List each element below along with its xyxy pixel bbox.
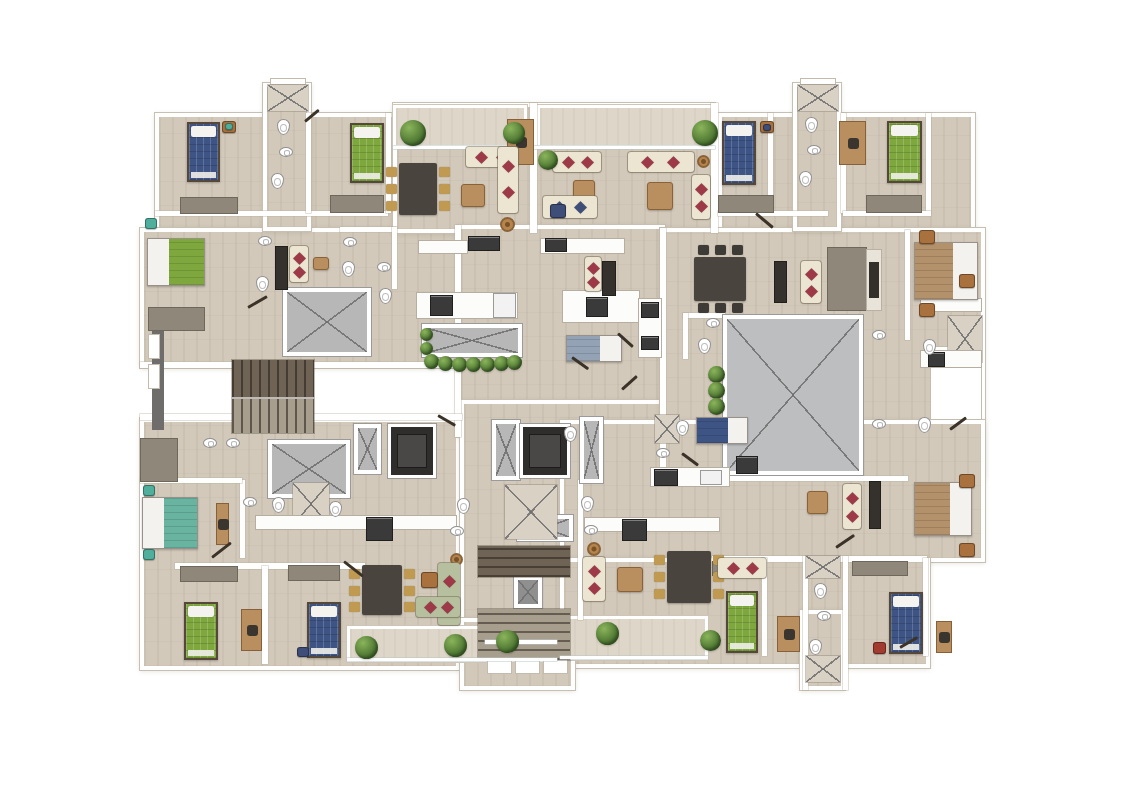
wall xyxy=(340,227,396,232)
wardrobe xyxy=(180,566,238,582)
sofa-cushion xyxy=(641,156,654,169)
tv-unit xyxy=(602,261,616,296)
coffee-table xyxy=(461,184,485,207)
sink-fixture xyxy=(807,145,821,155)
sofa-cushion xyxy=(587,276,600,289)
sofa-cushion xyxy=(588,565,601,578)
bed-blanket xyxy=(915,243,953,299)
double-bed xyxy=(147,238,205,286)
desk xyxy=(216,503,229,545)
appliance xyxy=(366,517,393,541)
wall xyxy=(240,480,245,558)
closet-x xyxy=(806,556,840,578)
plant xyxy=(708,398,725,415)
window-sill xyxy=(148,334,160,359)
sofa-cushion xyxy=(581,156,594,169)
sofa-cushion xyxy=(476,151,489,164)
sofa xyxy=(801,261,821,303)
tv-stand xyxy=(866,249,882,311)
desk xyxy=(839,121,866,165)
single-bed xyxy=(887,121,922,183)
appliance xyxy=(622,519,647,541)
bed-pillow xyxy=(726,125,752,136)
sofa xyxy=(843,484,861,529)
plant xyxy=(420,328,433,341)
wardrobe xyxy=(718,195,774,213)
sofa-cushion xyxy=(805,285,818,298)
sofa-cushion xyxy=(846,510,859,523)
wall xyxy=(926,113,931,213)
sink-fixture xyxy=(243,497,257,507)
plant-pot xyxy=(143,485,155,496)
balcony xyxy=(560,616,708,660)
plant-pot xyxy=(143,549,155,560)
plant xyxy=(438,356,453,371)
sofa xyxy=(416,597,460,617)
sink-fixture xyxy=(584,525,598,535)
bed-pillow xyxy=(311,606,337,617)
sofa-cushion xyxy=(293,266,306,279)
sofa xyxy=(583,557,605,601)
wardrobe xyxy=(140,438,178,482)
shaft-x xyxy=(354,424,381,474)
bed-foot xyxy=(188,650,214,656)
tv-unit xyxy=(869,481,881,529)
staircase xyxy=(478,546,570,577)
sink-fixture xyxy=(817,611,831,621)
kitchen-counter xyxy=(418,240,468,254)
tv-unit xyxy=(275,246,288,290)
side-table xyxy=(587,542,601,556)
desk xyxy=(241,609,262,651)
dining-chair xyxy=(654,589,665,599)
staircase xyxy=(232,399,314,433)
refrigerator xyxy=(700,470,722,485)
plant xyxy=(700,630,721,651)
window-sill xyxy=(800,78,836,85)
plant-pot xyxy=(959,274,975,288)
wardrobe xyxy=(288,565,340,581)
sink-fixture xyxy=(656,448,670,458)
plant-pot xyxy=(145,218,157,229)
staircase xyxy=(478,609,570,660)
desk-chair xyxy=(939,632,950,643)
sink-fixture xyxy=(226,438,240,448)
bed-pillow xyxy=(893,596,919,607)
plant xyxy=(480,357,495,372)
closet-x xyxy=(505,485,557,539)
window-sill xyxy=(270,78,306,85)
dining-chair xyxy=(732,245,743,255)
plant-pot xyxy=(959,474,975,488)
coffee-table xyxy=(807,491,828,514)
sofa-cushion xyxy=(805,268,818,281)
dining-chair xyxy=(654,572,665,582)
refrigerator xyxy=(493,293,516,318)
single-bed xyxy=(722,121,756,185)
desk-chair xyxy=(784,629,795,640)
kitchen-counter xyxy=(584,517,720,532)
window-sill xyxy=(148,364,160,389)
coffee-table xyxy=(313,257,329,270)
dining-chair xyxy=(439,167,450,177)
sink-fixture xyxy=(706,318,720,328)
elevator-cab xyxy=(530,435,560,468)
plant xyxy=(452,357,467,372)
double-bed xyxy=(142,497,198,549)
appliance xyxy=(545,238,567,252)
wall xyxy=(905,230,910,340)
plant xyxy=(708,366,725,383)
wardrobe xyxy=(866,195,922,213)
plant xyxy=(424,354,439,369)
appliance xyxy=(430,295,453,316)
tv-screen xyxy=(869,262,879,298)
sofa-cushion xyxy=(441,601,454,614)
wardrobe xyxy=(827,247,867,311)
dining-chair xyxy=(713,589,724,599)
appliance xyxy=(736,456,758,474)
sofa-cushion xyxy=(695,200,708,213)
appliance xyxy=(586,297,608,317)
dining-chair xyxy=(732,303,743,313)
wardrobe xyxy=(180,197,238,214)
dining-chair xyxy=(386,201,397,211)
dining-chair xyxy=(404,569,415,579)
coffee-table xyxy=(617,567,643,592)
shaft-x xyxy=(723,315,863,475)
dining-chair xyxy=(715,303,726,313)
wall xyxy=(306,113,311,213)
dining-chair xyxy=(698,303,709,313)
sink-fixture xyxy=(450,526,464,536)
sofa xyxy=(718,558,766,578)
desk xyxy=(936,621,952,653)
tv-unit xyxy=(774,261,787,303)
plant xyxy=(507,355,522,370)
sofa-cushion xyxy=(502,160,515,173)
bed-foot xyxy=(730,643,754,649)
sink-fixture xyxy=(872,419,886,429)
appliance xyxy=(654,469,678,486)
side-table xyxy=(500,217,515,232)
sofa xyxy=(498,147,518,213)
bed-pillow xyxy=(891,125,918,136)
plant-pot xyxy=(919,230,935,244)
dining-chair xyxy=(404,602,415,612)
balcony xyxy=(537,105,715,148)
sofa-cushion xyxy=(502,186,515,199)
wall xyxy=(923,558,928,656)
kitchen-counter xyxy=(255,515,457,530)
dining-chair xyxy=(386,167,397,177)
desk-chair xyxy=(247,625,258,636)
plant xyxy=(466,357,481,372)
plant-pot xyxy=(297,647,309,657)
sofa-cushion xyxy=(587,263,600,276)
staircase xyxy=(232,360,314,397)
sofa xyxy=(553,152,601,172)
dining-chair xyxy=(404,586,415,596)
plant-pot xyxy=(550,204,566,218)
sofa-cushion xyxy=(424,601,437,614)
dining-chair xyxy=(349,602,360,612)
sofa-cushion xyxy=(562,156,575,169)
dining-chair xyxy=(386,184,397,194)
closet-x xyxy=(806,656,840,682)
plant xyxy=(496,630,519,653)
desk-chair xyxy=(848,138,859,149)
sofa-cushion xyxy=(443,575,456,588)
elevator-cab xyxy=(398,435,427,468)
bed-foot xyxy=(354,173,380,179)
plant xyxy=(692,120,718,146)
dining-table xyxy=(667,551,711,603)
sofa xyxy=(692,175,710,219)
railing xyxy=(347,658,557,661)
shaft-x xyxy=(422,324,522,357)
bed-foot xyxy=(891,173,918,179)
single-bed xyxy=(350,123,384,183)
sofa-cushion xyxy=(575,201,588,214)
desk xyxy=(777,616,800,652)
sink-fixture xyxy=(258,236,272,246)
plant xyxy=(538,150,558,170)
bed-pillow xyxy=(730,595,754,606)
bed-pillow xyxy=(188,606,214,617)
double-bed xyxy=(914,482,972,536)
plant-pot xyxy=(919,303,935,317)
closet-x xyxy=(268,85,308,111)
plant xyxy=(596,622,619,645)
dining-chair xyxy=(654,555,665,565)
plant-pot xyxy=(959,543,975,557)
plant-pot xyxy=(421,572,438,588)
sofa-cushion xyxy=(695,183,708,196)
bed-blanket xyxy=(915,483,950,535)
appliance xyxy=(468,236,500,251)
single-bed xyxy=(187,122,220,182)
wardrobe xyxy=(148,307,205,331)
plant-pot xyxy=(763,124,771,131)
sofa xyxy=(628,152,694,172)
railing xyxy=(393,146,715,149)
sofa-cushion xyxy=(667,156,680,169)
single-bed xyxy=(184,602,218,660)
dining-table xyxy=(694,257,746,301)
double-bed xyxy=(914,242,978,300)
single-bed xyxy=(307,602,341,658)
single-bed xyxy=(726,591,758,653)
sofa-cushion xyxy=(293,252,306,265)
sofa-cushion xyxy=(588,582,601,595)
bed-blanket xyxy=(697,418,728,443)
plant-pot xyxy=(873,642,886,654)
wall xyxy=(683,313,725,318)
sofa-cushion xyxy=(727,562,740,575)
elevator xyxy=(388,424,436,478)
double-bed xyxy=(696,417,748,444)
wall xyxy=(386,113,391,213)
dining-chair xyxy=(715,245,726,255)
wall xyxy=(392,227,397,289)
side-table xyxy=(697,155,710,168)
sofa xyxy=(585,257,601,291)
wardrobe xyxy=(330,195,384,213)
sofa-cushion xyxy=(846,492,859,505)
bed-blanket xyxy=(164,498,197,548)
plant-pot xyxy=(225,123,233,130)
shaft-x xyxy=(283,288,371,356)
sink-fixture xyxy=(343,237,357,247)
sofa-cushion xyxy=(746,562,759,575)
dining-chair xyxy=(439,184,450,194)
plant xyxy=(400,120,426,146)
wall xyxy=(843,556,848,690)
elevator xyxy=(520,424,570,478)
desk-chair xyxy=(218,519,229,530)
railing xyxy=(560,656,708,659)
wardrobe xyxy=(852,561,908,576)
shaft-x xyxy=(514,576,542,608)
sofa xyxy=(290,246,308,282)
closet-x xyxy=(798,85,838,111)
plant xyxy=(444,634,467,657)
plant xyxy=(355,636,378,659)
dining-chair xyxy=(698,245,709,255)
sink-fixture xyxy=(872,330,886,340)
bed-foot xyxy=(726,175,752,181)
dining-chair xyxy=(439,201,450,211)
sink-fixture xyxy=(279,147,293,157)
wall xyxy=(683,313,688,359)
coffee-table xyxy=(647,182,673,210)
dining-chair xyxy=(349,586,360,596)
bed-blanket xyxy=(169,239,204,285)
bed-foot xyxy=(311,648,337,654)
plant xyxy=(503,122,525,144)
appliance xyxy=(641,302,659,318)
floor-plan xyxy=(0,0,1123,800)
bed-pillow xyxy=(354,127,380,138)
dining-table xyxy=(399,163,437,215)
wall xyxy=(262,566,268,664)
shaft-x xyxy=(492,420,520,480)
sink-fixture xyxy=(377,262,391,272)
dining-table xyxy=(362,565,402,615)
plant xyxy=(708,382,725,399)
appliance xyxy=(641,336,659,350)
bed-foot xyxy=(191,172,216,178)
sink-fixture xyxy=(203,438,217,448)
shaft-x xyxy=(580,417,603,483)
bed-pillow xyxy=(191,126,216,137)
